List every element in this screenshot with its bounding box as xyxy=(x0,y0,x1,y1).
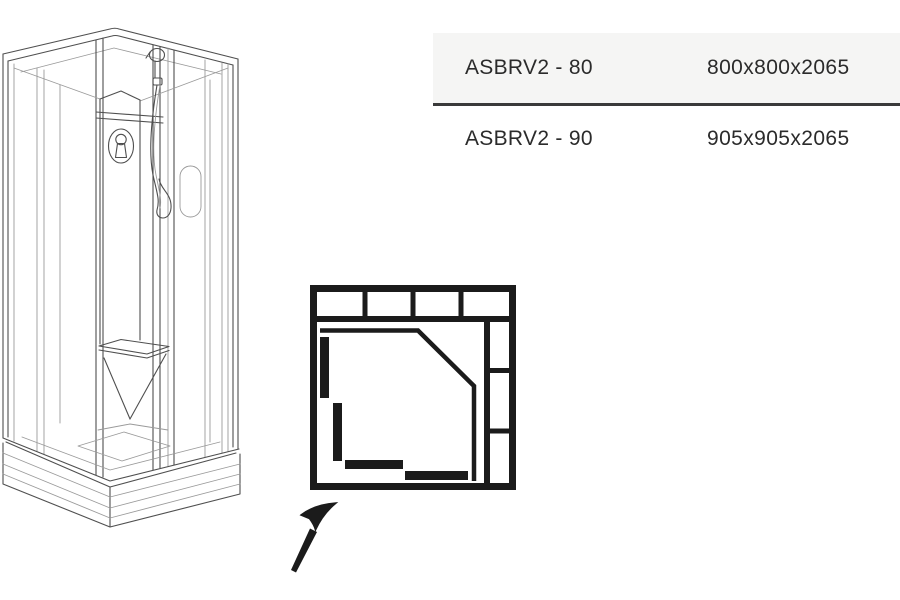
wall-panel-detail xyxy=(180,166,201,217)
model-cell: ASBRV2 - 80 xyxy=(433,56,707,80)
top-panel-band xyxy=(316,291,511,319)
shower-tray xyxy=(3,424,239,487)
shower-control-keyhole xyxy=(109,129,134,163)
spec-table: ASBRV2 - 80 800x800x2065 ASBRV2 - 90 905… xyxy=(433,33,900,172)
corner-seat xyxy=(99,340,169,420)
table-row: ASBRV2 - 80 800x800x2065 xyxy=(433,33,900,106)
entry-arrow-icon xyxy=(291,503,336,573)
table-row: ASBRV2 - 90 905x905x2065 xyxy=(433,106,900,172)
dimensions-cell: 800x800x2065 xyxy=(707,56,850,80)
door-travel-line xyxy=(320,331,474,482)
shower-head-icon xyxy=(146,49,165,86)
page: ASBRV2 - 80 800x800x2065 ASBRV2 - 90 905… xyxy=(0,0,900,600)
dimensions-cell: 905x905x2065 xyxy=(707,127,850,151)
model-cell: ASBRV2 - 90 xyxy=(433,127,707,151)
drain xyxy=(118,447,130,453)
right-panel-band xyxy=(487,322,511,488)
shower-cabin-illustration xyxy=(3,28,240,527)
top-view-diagram xyxy=(314,289,513,489)
cabin-roof-outline xyxy=(3,28,238,59)
